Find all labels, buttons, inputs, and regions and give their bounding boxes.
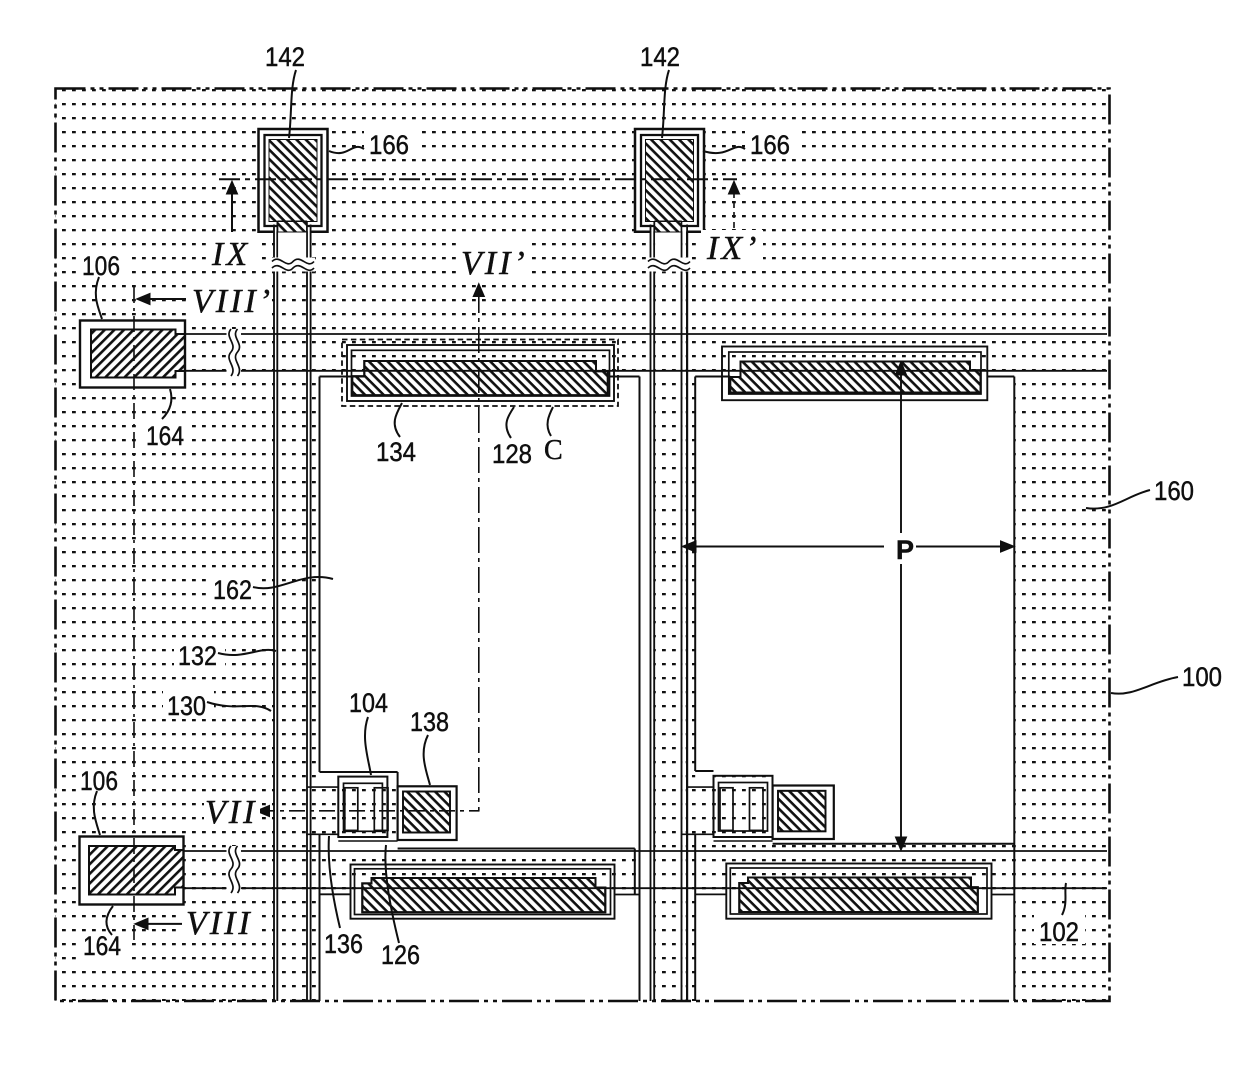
svg-text:106: 106	[80, 766, 118, 796]
svg-text:142: 142	[640, 42, 680, 72]
svg-text:126: 126	[381, 940, 420, 970]
svg-text:142: 142	[265, 42, 305, 72]
svg-text:106: 106	[82, 251, 120, 281]
svg-text:164: 164	[83, 931, 121, 961]
svg-text:IX’: IX’	[706, 230, 759, 267]
svg-text:164: 164	[146, 421, 184, 451]
svg-text:102: 102	[1039, 917, 1079, 947]
svg-text:136: 136	[324, 929, 363, 959]
svg-text:130: 130	[167, 691, 206, 721]
svg-text:162: 162	[213, 575, 252, 605]
svg-text:VII: VII	[205, 794, 257, 831]
svg-text:VII’: VII’	[461, 245, 528, 282]
svg-text:132: 132	[178, 641, 217, 671]
svg-text:VIII: VIII	[186, 905, 253, 942]
svg-text:P: P	[896, 535, 914, 565]
svg-text:100: 100	[1182, 662, 1222, 692]
svg-text:C: C	[544, 435, 563, 466]
svg-text:160: 160	[1154, 476, 1194, 506]
svg-text:104: 104	[349, 688, 388, 718]
svg-text:IX: IX	[211, 236, 250, 273]
svg-text:166: 166	[750, 130, 790, 160]
svg-text:128: 128	[492, 439, 532, 469]
svg-text:138: 138	[410, 707, 449, 737]
svg-text:134: 134	[376, 437, 416, 467]
svg-text:166: 166	[369, 130, 409, 160]
svg-text:VIII’: VIII’	[192, 283, 273, 320]
